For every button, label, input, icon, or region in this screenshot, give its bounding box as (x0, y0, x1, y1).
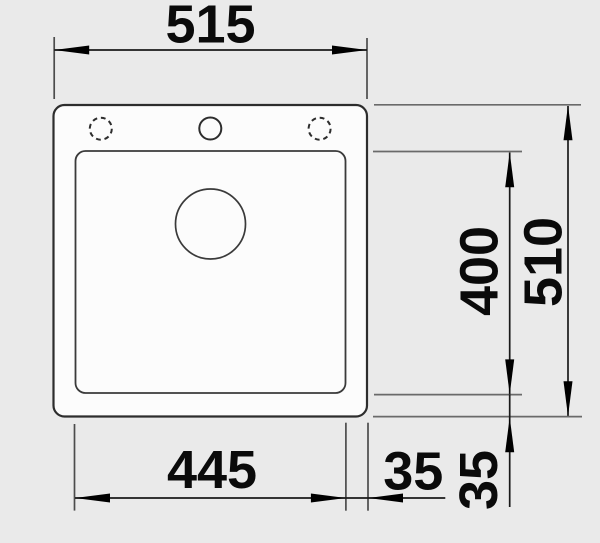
svg-text:400: 400 (449, 226, 509, 316)
svg-text:35: 35 (383, 442, 443, 502)
svg-text:515: 515 (165, 0, 255, 55)
svg-text:510: 510 (513, 217, 573, 307)
svg-text:35: 35 (449, 450, 509, 510)
svg-text:445: 445 (167, 440, 257, 500)
